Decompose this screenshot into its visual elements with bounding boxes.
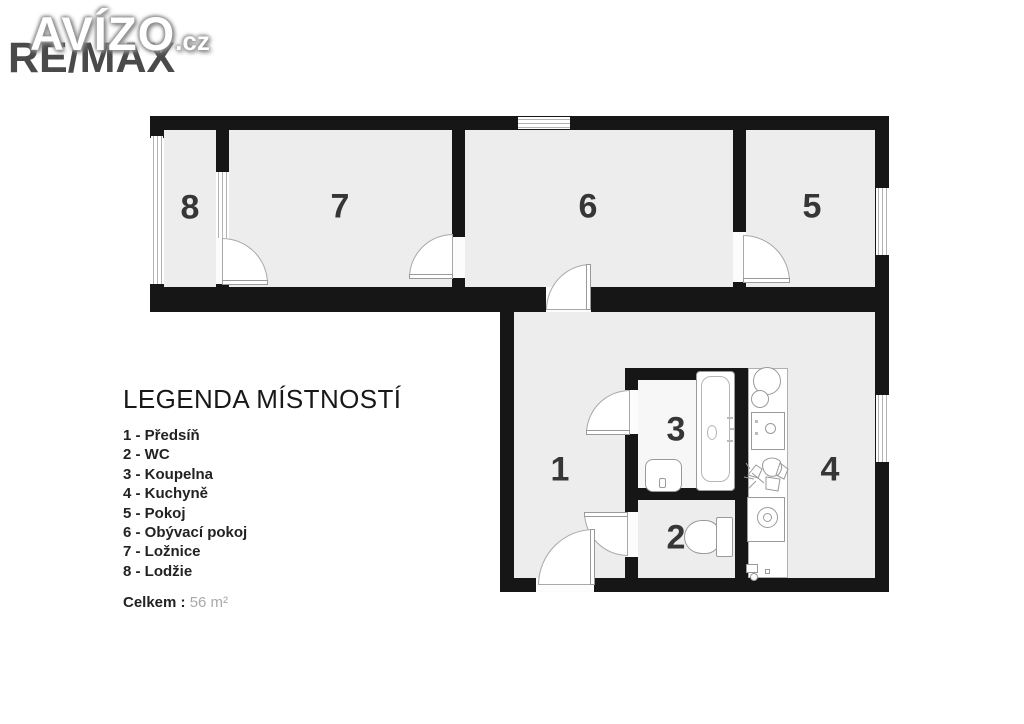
door-leaf-entrance [590,529,595,585]
legend-title: LEGENDA MÍSTNOSTÍ [123,384,401,415]
room-legend: LEGENDA MÍSTNOSTÍ 1 - Předsíň 2 - WC 3 -… [123,384,401,581]
room-number-5: 5 [803,188,822,227]
total-area-label: Celkem : [123,594,186,611]
window-living-room [518,117,570,129]
avizo-logo-tld: .cz [175,26,210,56]
kitchen-misc-item [750,573,758,581]
room-number-1: 1 [551,451,570,490]
washing-machine-drum-icon [763,513,772,522]
glazing-loggia-bedroom [216,172,229,238]
legend-item: 5 - Pokoj [123,504,401,523]
room-number-3: 3 [667,411,686,450]
legend-item: 7 - Ložnice [123,542,401,561]
stove-knob-icon [755,432,758,435]
partition-living-room5 [733,130,746,232]
brand-logos: RE/MAX AVÍZO.cz [0,0,260,95]
avizo-logo-text: AVÍZO [30,7,175,60]
kitchen-misc-item [746,564,758,573]
washbasin-tap-icon [659,478,666,488]
avizo-logo: AVÍZO.cz [30,6,210,61]
wall-bottom-right-of-entry [594,578,889,592]
door-leaf-bedroom [409,274,453,279]
legend-item: 4 - Kuchyně [123,484,401,503]
wall-mid-horizontal-left [150,287,546,312]
bathtub-tap-icon [727,417,733,419]
window-loggia [151,136,163,284]
bathtub-tap-icon [727,440,733,442]
window-kitchen [876,395,889,462]
legend-item: 1 - Předsíň [123,426,401,445]
stove-knob-icon [755,420,758,423]
legend-item: 6 - Obývací pokoj [123,523,401,542]
total-area-value: 56 m² [190,594,228,611]
wall-bottom-left-of-entry [500,578,536,592]
listing-floorplan-page: RE/MAX AVÍZO.cz [0,0,1024,724]
room-number-6: 6 [579,188,598,227]
door-leaf-living [586,264,591,310]
plant-sketch [742,447,792,499]
toilet-tank [716,517,733,557]
wall-lower-left [500,312,514,592]
partition-loggia-bedroom-top [216,130,229,172]
stove-burner-icon [765,423,776,434]
partition-living-room5-stub [733,282,746,312]
wall-left-top-stub [150,116,164,138]
threshold-bedroom-door [452,237,465,278]
partition-bedroom-living-stub [452,278,465,312]
door-leaf-loggia [222,280,268,285]
window-room5 [876,188,889,255]
door-leaf-room5 [743,278,790,283]
bathtub-drain [707,425,717,440]
bathroom-wall-left-c [625,557,638,578]
bathtub-tap-icon [729,428,734,430]
partition-loggia-bedroom-stub [216,284,229,312]
door-leaf-bathroom [586,430,630,435]
room-number-7: 7 [331,188,350,227]
bathroom-wall-left-b [625,434,638,512]
legend-item: 3 - Koupelna [123,465,401,484]
room-number-4: 4 [821,451,840,490]
legend-items: 1 - Předsíň 2 - WC 3 - Koupelna 4 - Kuch… [123,426,401,581]
bathroom-wall-left-a [625,368,638,390]
room-number-2: 2 [667,519,686,558]
legend-item: 2 - WC [123,445,401,464]
kitchen-misc-item [765,569,770,574]
toilet-bowl [684,520,720,554]
total-area: Celkem : 56 m² [123,594,228,611]
door-leaf-wc [584,512,628,517]
legend-item: 8 - Lodžie [123,562,401,581]
room-number-8: 8 [181,189,200,228]
partition-bedroom-living [452,130,465,237]
kitchen-sink-bowl-small [751,390,769,408]
